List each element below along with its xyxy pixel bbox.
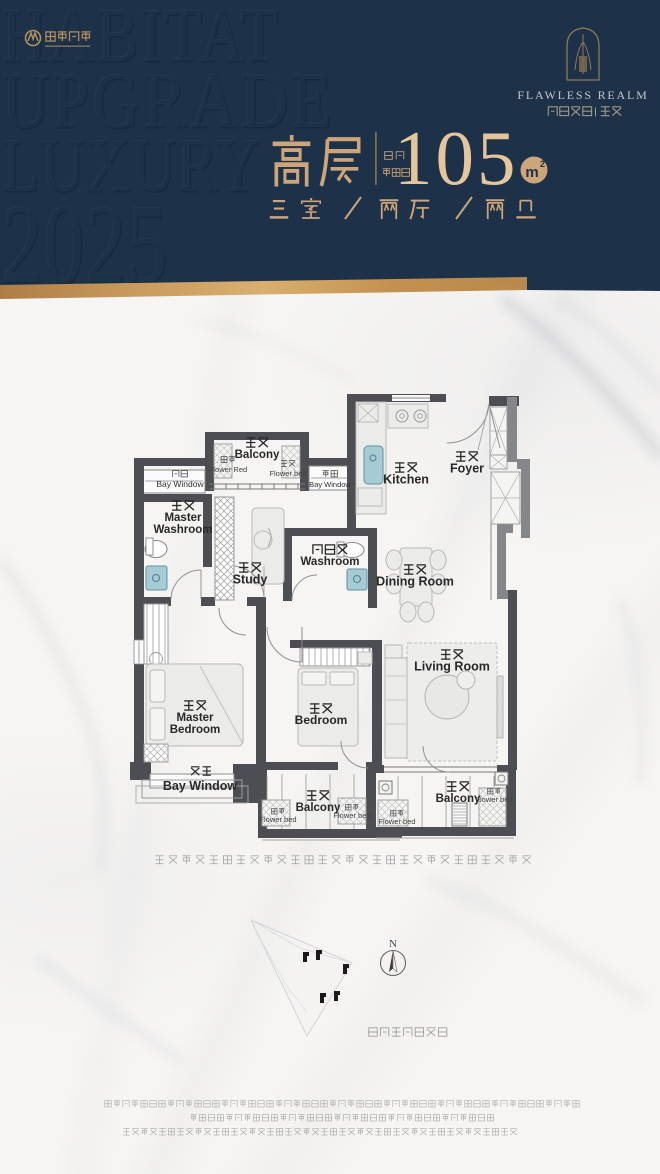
svg-text:Kitchen: Kitchen — [383, 473, 429, 487]
svg-text:Bedroom: Bedroom — [170, 724, 220, 736]
svg-text:Washroom: Washroom — [154, 524, 213, 536]
svg-text:Flower bed: Flower bed — [475, 795, 512, 804]
svg-text:N: N — [389, 938, 397, 950]
svg-text:Master: Master — [176, 712, 214, 724]
svg-text:Flower bed: Flower bed — [269, 469, 306, 478]
svg-text:Living Room: Living Room — [414, 660, 490, 674]
svg-text:Flower bed: Flower bed — [259, 815, 296, 824]
svg-text:Flower bed: Flower bed — [378, 817, 415, 826]
svg-text:Dining Room: Dining Room — [376, 575, 454, 589]
svg-text:Study: Study — [233, 573, 268, 587]
svg-text:Balcony: Balcony — [235, 449, 280, 461]
svg-text:Flower Red: Flower Red — [209, 465, 247, 474]
svg-text:105: 105 — [394, 115, 519, 201]
svg-text:Bay Window: Bay Window — [309, 480, 351, 489]
svg-text:Bedroom: Bedroom — [295, 713, 348, 727]
svg-text:Bay Window: Bay Window — [163, 779, 237, 793]
svg-text:m: m — [525, 164, 538, 181]
svg-text:FLAWLESS REALM: FLAWLESS REALM — [517, 88, 648, 102]
svg-text:2: 2 — [540, 159, 545, 169]
svg-text:Flower bed: Flower bed — [333, 811, 370, 820]
svg-text:Foyer: Foyer — [450, 462, 484, 476]
svg-text:Bay Window: Bay Window — [156, 479, 204, 489]
svg-text:Washroom: Washroom — [301, 556, 360, 568]
svg-text:Master: Master — [164, 512, 202, 524]
